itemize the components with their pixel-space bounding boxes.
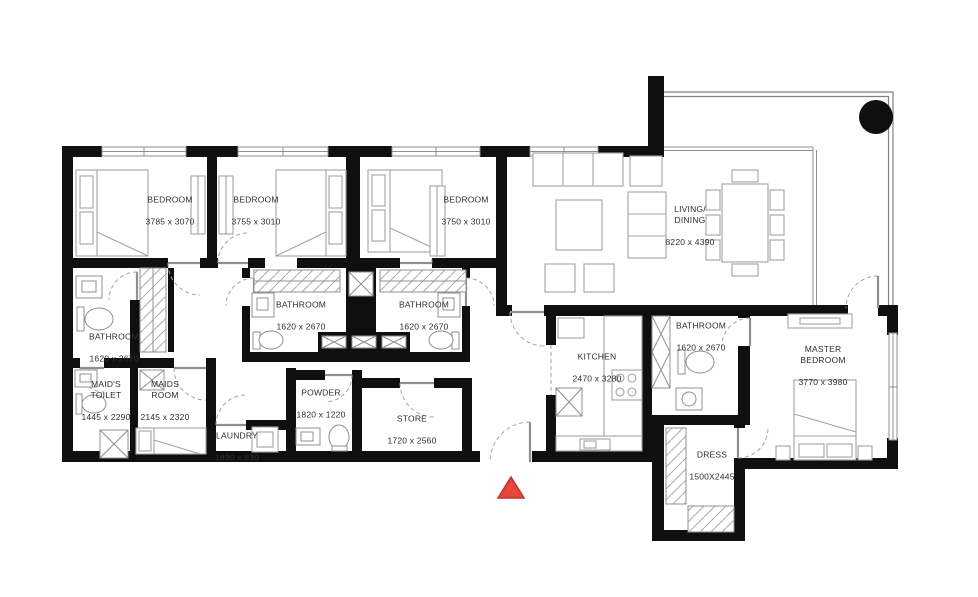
entrance-marker bbox=[498, 477, 524, 498]
kitchen-counter bbox=[556, 316, 642, 451]
dining-table bbox=[706, 170, 784, 276]
maids-bed bbox=[136, 428, 206, 454]
walls bbox=[62, 76, 898, 541]
floor-plan-drawing bbox=[0, 0, 978, 597]
bed-1 bbox=[76, 170, 148, 256]
floor-plan: BEDROOM 3785 x 3070 BEDROOM 3755 x 3010 … bbox=[0, 0, 978, 597]
master-bed bbox=[776, 314, 872, 460]
sofa-set bbox=[533, 153, 666, 292]
column bbox=[859, 100, 893, 134]
bed-2 bbox=[276, 170, 346, 256]
